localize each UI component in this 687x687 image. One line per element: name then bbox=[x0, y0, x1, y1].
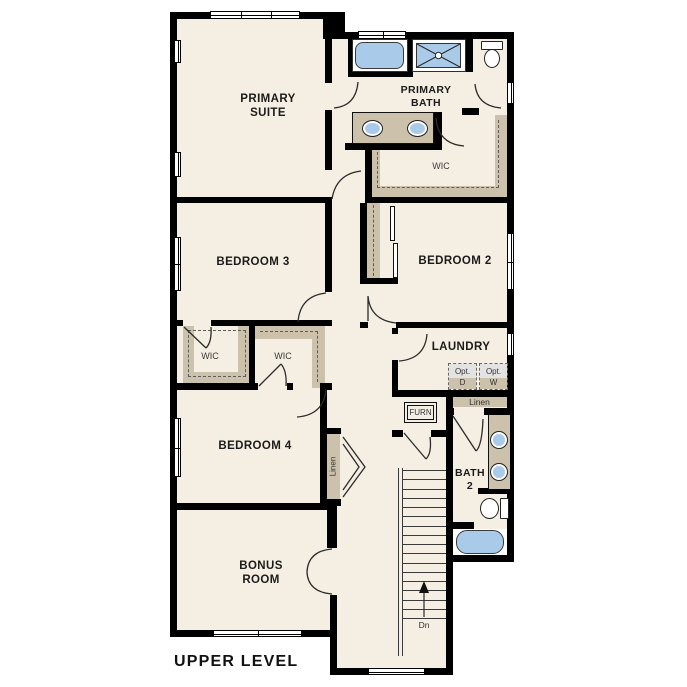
exterior-wall bbox=[330, 637, 337, 675]
primary-bathtub bbox=[355, 42, 404, 69]
optional-washer: Opt. W bbox=[479, 363, 508, 390]
window bbox=[213, 630, 302, 637]
stair-tread bbox=[403, 609, 446, 610]
window bbox=[507, 82, 514, 104]
interior-wall bbox=[466, 38, 473, 72]
interior-wall bbox=[211, 320, 332, 326]
shelf-dash bbox=[377, 152, 379, 188]
opt-dryer-line2: D bbox=[449, 378, 476, 387]
interior-wall bbox=[327, 428, 341, 434]
stair-tread bbox=[403, 563, 446, 564]
exterior-wall bbox=[446, 555, 453, 675]
shelf-dash bbox=[498, 120, 500, 188]
interior-wall bbox=[484, 408, 507, 415]
bedroom2-closet-door-panel bbox=[390, 206, 395, 241]
interior-wall bbox=[177, 320, 183, 326]
furnace-closet-unit: FURN bbox=[404, 402, 437, 423]
primary-sink-right bbox=[407, 120, 428, 137]
primary-wic-label: WIC bbox=[411, 161, 471, 171]
exterior-wall bbox=[170, 12, 177, 637]
bedroom2-label: BEDROOM 2 bbox=[375, 255, 535, 269]
stair-tread bbox=[403, 600, 446, 601]
window bbox=[358, 31, 406, 39]
stair-tread bbox=[403, 544, 446, 545]
interior-wall bbox=[365, 145, 372, 203]
linen-laundry-label: Linen bbox=[452, 398, 507, 407]
window bbox=[174, 152, 181, 177]
wic-left-label: WIC bbox=[180, 351, 240, 361]
window bbox=[174, 40, 181, 63]
interior-wall bbox=[462, 108, 479, 115]
primary-shower-pan bbox=[416, 43, 461, 68]
stair-tread bbox=[403, 498, 446, 499]
interior-wall bbox=[177, 197, 332, 203]
bath2-label: BATH2 bbox=[440, 467, 500, 492]
interior-wall bbox=[360, 203, 367, 284]
stair-tread bbox=[403, 618, 446, 619]
interior-wall bbox=[431, 430, 453, 437]
stair-tread bbox=[403, 535, 446, 536]
primary-bath-label: PRIMARYBATH bbox=[366, 84, 486, 109]
interior-wall bbox=[366, 197, 507, 203]
primary-wic-shelf bbox=[495, 115, 507, 197]
stair-tread bbox=[403, 516, 446, 517]
plan-title: UPPER LEVEL bbox=[174, 653, 298, 671]
interior-wall bbox=[325, 33, 332, 83]
exterior-wall bbox=[446, 555, 514, 562]
interior-wall bbox=[392, 328, 398, 334]
linen-hall-label: Linen bbox=[329, 442, 338, 492]
stair-tread bbox=[403, 553, 446, 554]
stair-tread bbox=[403, 581, 446, 582]
interior-wall bbox=[446, 522, 474, 529]
stair-tread bbox=[403, 526, 446, 527]
window bbox=[210, 11, 300, 19]
primary-sink-left bbox=[362, 120, 383, 137]
bath2-toilet-tank bbox=[500, 498, 509, 519]
bath2-toilet-bowl bbox=[480, 498, 499, 519]
shelf-dash bbox=[377, 187, 499, 189]
interior-wall bbox=[177, 383, 258, 390]
primary-toilet-bowl bbox=[484, 49, 500, 68]
bath2-sink-top bbox=[490, 431, 508, 449]
stair-tread bbox=[403, 572, 446, 573]
interior-wall bbox=[177, 503, 327, 510]
interior-wall bbox=[325, 203, 332, 292]
optional-dryer: Opt. D bbox=[448, 363, 477, 390]
interior-wall bbox=[392, 430, 403, 437]
furnace-label: FURN bbox=[409, 408, 431, 417]
interior-wall bbox=[392, 390, 507, 397]
bonus-room-label: BONUSROOM bbox=[201, 560, 321, 587]
interior-wall bbox=[446, 437, 453, 563]
interior-wall bbox=[396, 322, 507, 328]
stair-direction-label: Dn bbox=[404, 621, 444, 630]
floor-plan: FURN Opt. D Opt. W bbox=[0, 0, 687, 687]
bedroom4-label: BEDROOM 4 bbox=[175, 440, 335, 454]
interior-wall bbox=[330, 595, 337, 637]
outside-area bbox=[345, 0, 515, 32]
interior-wall bbox=[434, 112, 442, 150]
interior-wall bbox=[360, 278, 398, 284]
laundry-label: LAUNDRY bbox=[401, 341, 521, 355]
bedroom3-label: BEDROOM 3 bbox=[173, 256, 333, 270]
interior-wall bbox=[345, 143, 442, 150]
stair-tread bbox=[403, 590, 446, 591]
interior-wall bbox=[327, 503, 337, 548]
outside-area bbox=[453, 562, 514, 634]
interior-wall bbox=[320, 383, 332, 390]
interior-wall bbox=[287, 383, 293, 390]
interior-wall bbox=[360, 322, 368, 328]
opt-dryer-line1: Opt. bbox=[449, 367, 476, 376]
wic-right-label: WIC bbox=[253, 351, 313, 361]
opt-washer-line1: Opt. bbox=[480, 367, 507, 376]
stair-tread bbox=[403, 507, 446, 508]
opt-washer-line2: W bbox=[480, 378, 507, 387]
interior-wall bbox=[446, 408, 454, 415]
window bbox=[368, 668, 425, 675]
bath2-bathtub bbox=[456, 530, 504, 554]
primary-suite-label: PRIMARYSUITE bbox=[198, 93, 338, 120]
